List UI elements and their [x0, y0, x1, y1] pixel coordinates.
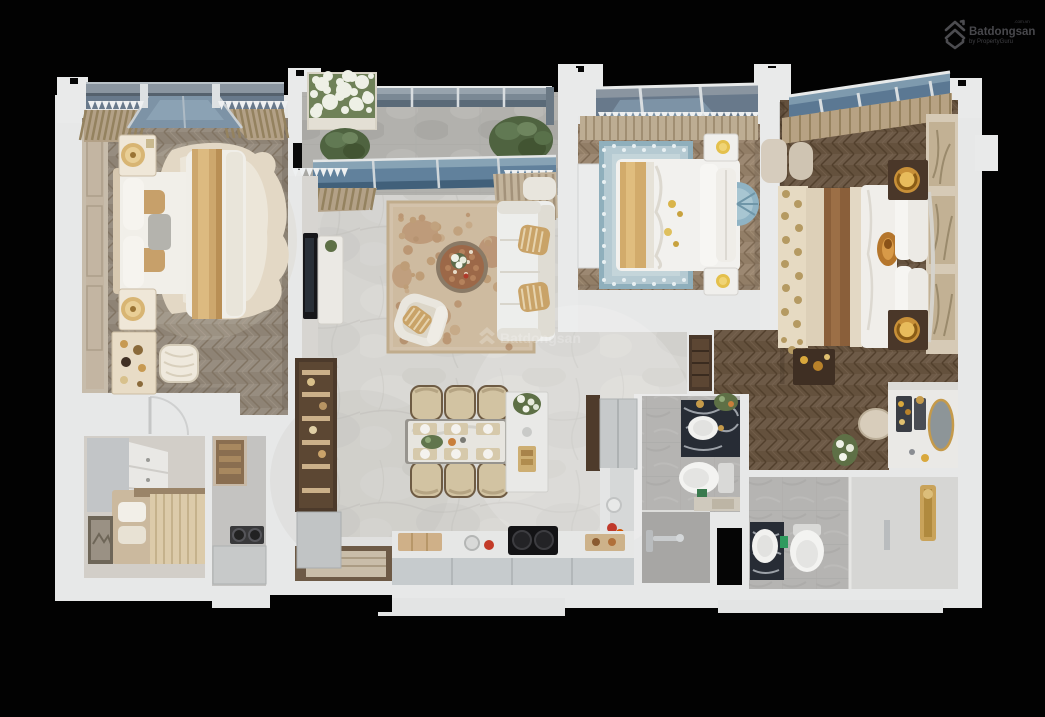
- svg-text:by PropertyGuru: by PropertyGuru: [969, 39, 1013, 45]
- svg-text:Batdongsan: Batdongsan: [500, 330, 581, 346]
- svg-text:.com.vn: .com.vn: [1014, 19, 1030, 24]
- svg-text:Batdongsan: Batdongsan: [969, 26, 1035, 38]
